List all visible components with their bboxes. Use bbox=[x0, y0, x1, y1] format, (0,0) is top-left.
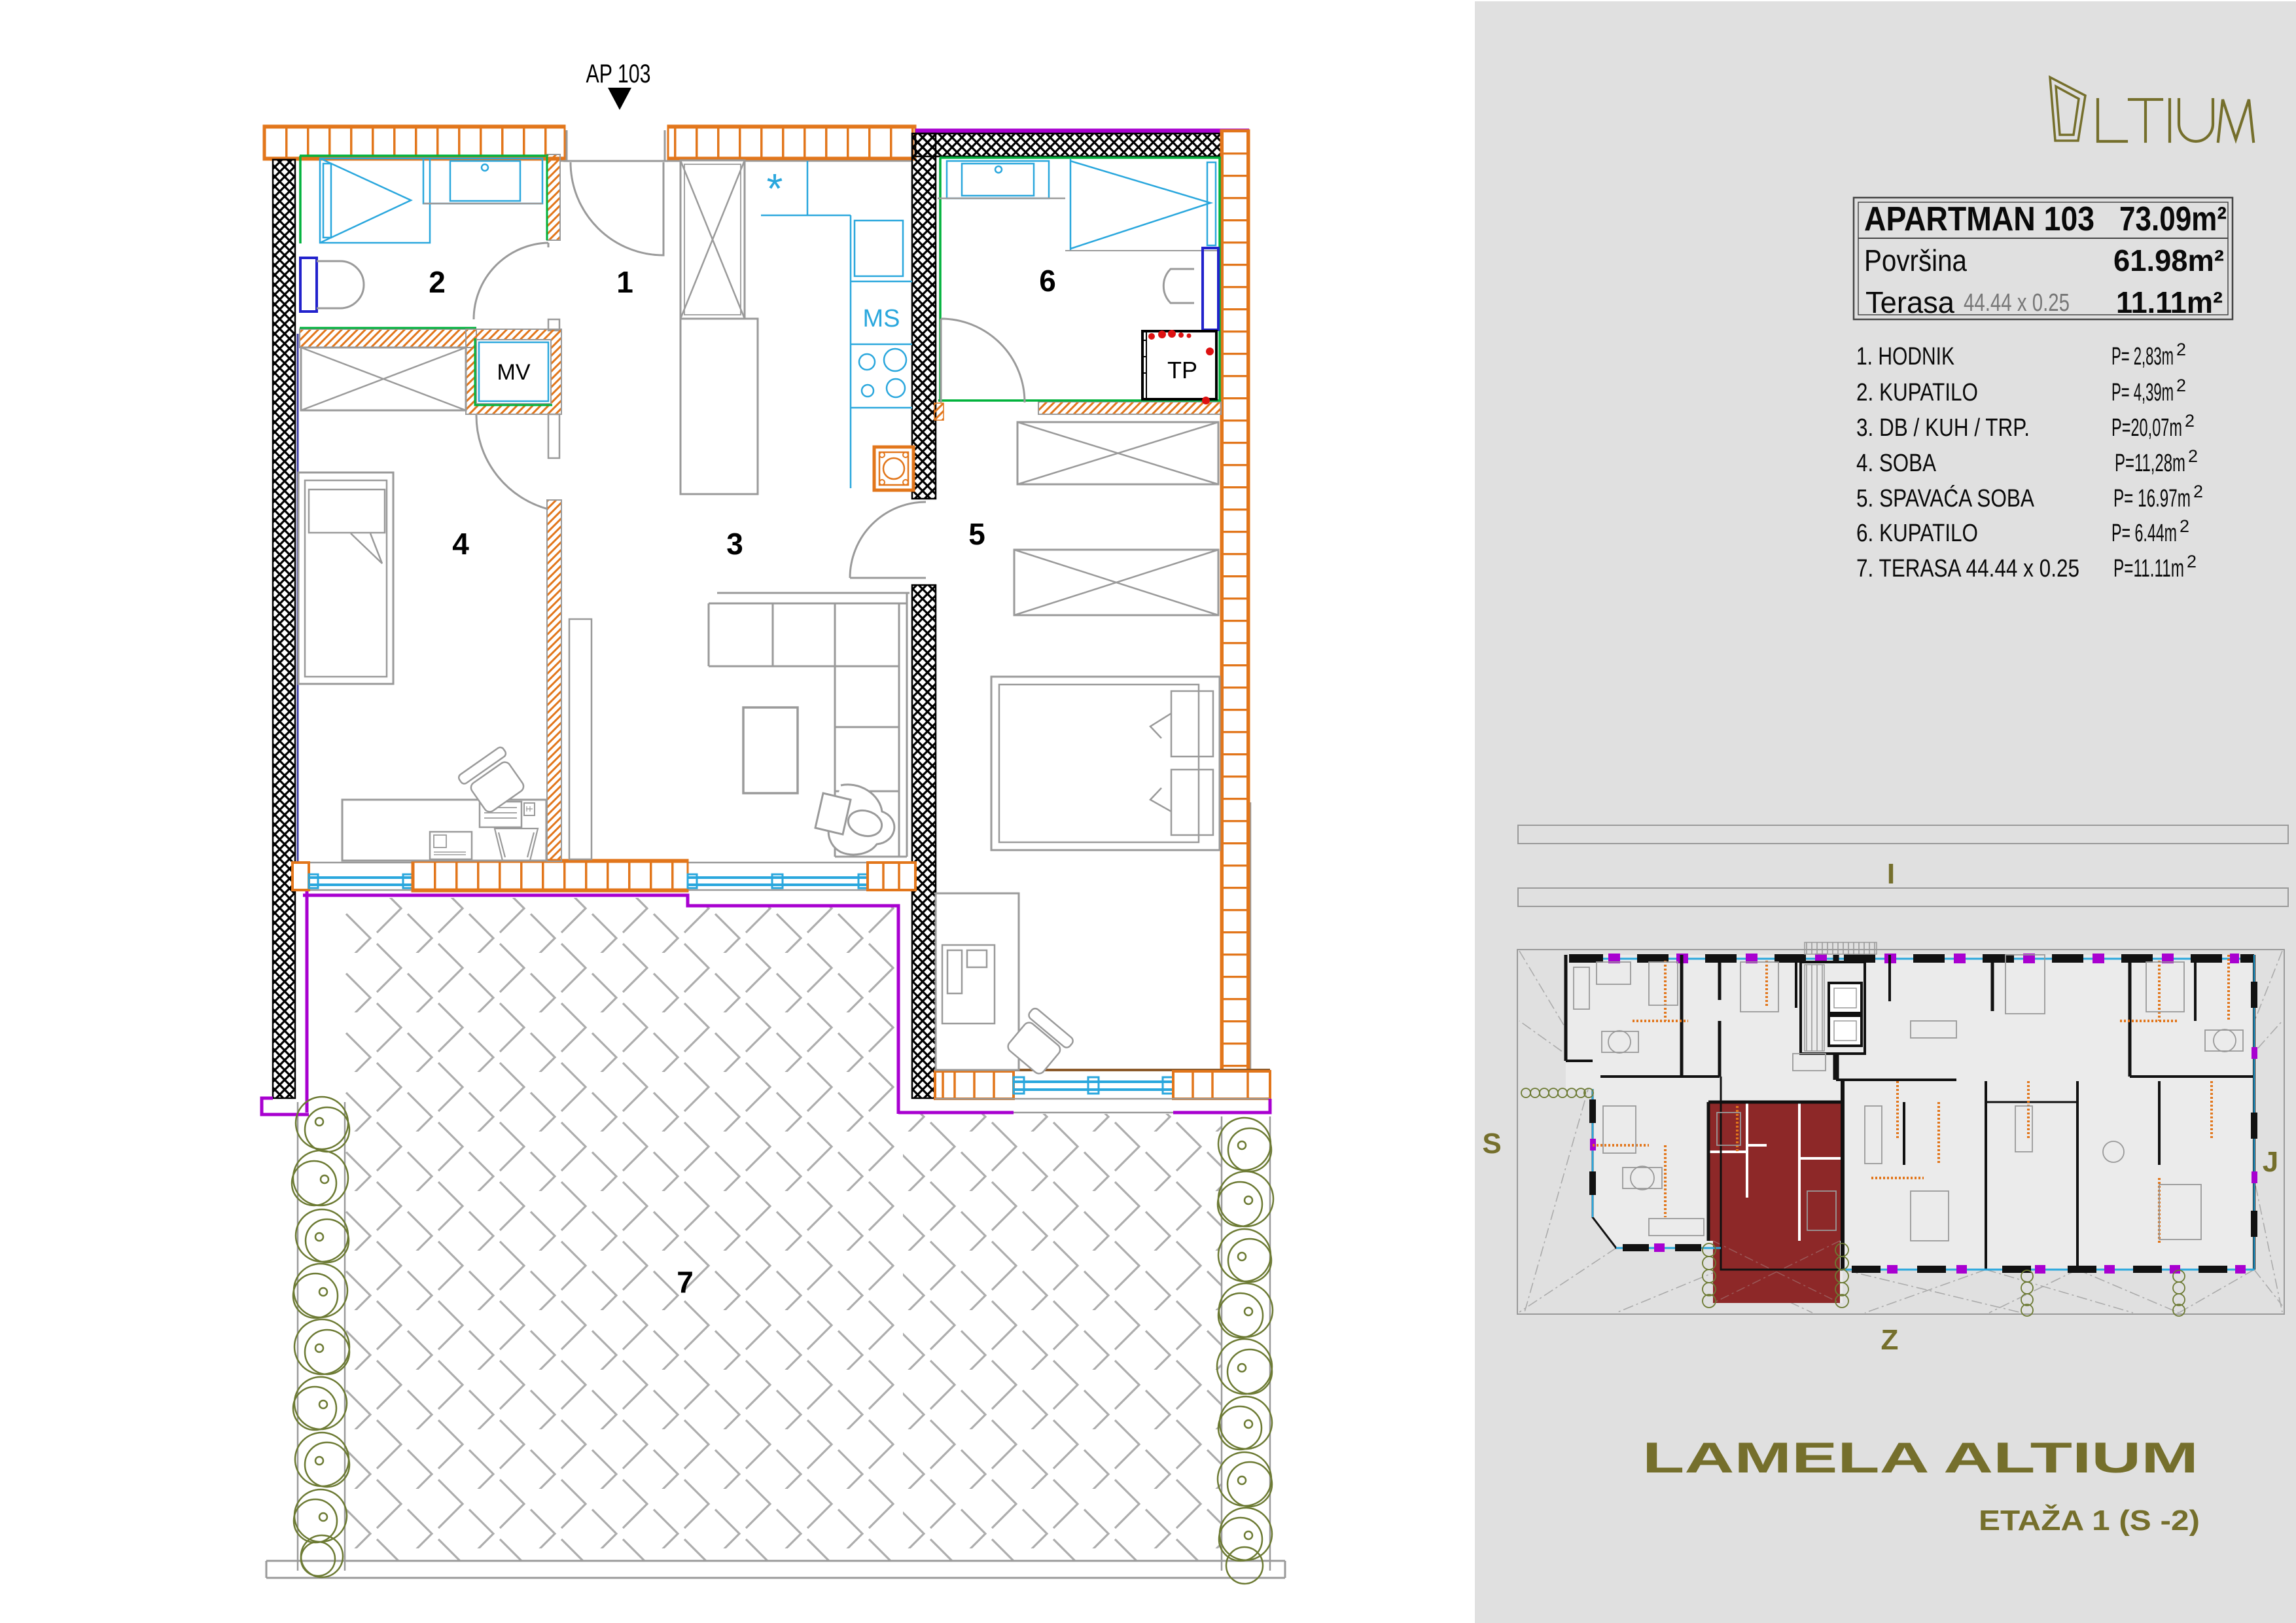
svg-text:P= 6.44m: P= 6.44m bbox=[2111, 520, 2177, 547]
svg-text:P= 16.97m: P= 16.97m bbox=[2113, 485, 2191, 512]
svg-text:P= 2,83m: P= 2,83m bbox=[2111, 343, 2174, 370]
svg-text:TP: TP bbox=[1167, 357, 1197, 383]
svg-text:4. SOBA: 4. SOBA bbox=[1856, 450, 1937, 477]
svg-text:2: 2 bbox=[2187, 552, 2197, 571]
svg-text:2: 2 bbox=[2176, 340, 2186, 359]
svg-text:2. KUPATILO: 2. KUPATILO bbox=[1856, 379, 1978, 406]
svg-text:73.09m²: 73.09m² bbox=[2119, 200, 2227, 238]
svg-text:ETAŽA 1 (S -2): ETAŽA 1 (S -2) bbox=[1979, 1504, 2200, 1537]
svg-text:Površina: Površina bbox=[1864, 243, 1967, 277]
svg-text:P=11.11m: P=11.11m bbox=[2113, 555, 2184, 582]
svg-text:1. HODNIK: 1. HODNIK bbox=[1856, 343, 1954, 370]
svg-text:11.11m²: 11.11m² bbox=[2116, 285, 2223, 319]
svg-text:2: 2 bbox=[2193, 482, 2203, 501]
svg-text:AP 103: AP 103 bbox=[586, 60, 651, 88]
svg-text:LAMELA ALTIUM: LAMELA ALTIUM bbox=[1642, 1433, 2199, 1482]
svg-text:6. KUPATILO: 6. KUPATILO bbox=[1856, 520, 1978, 547]
svg-text:2: 2 bbox=[2188, 446, 2198, 466]
svg-text:Z: Z bbox=[1881, 1324, 1899, 1356]
svg-text:P=11,28m: P=11,28m bbox=[2115, 450, 2185, 477]
svg-text:P=20,07m: P=20,07m bbox=[2111, 414, 2182, 442]
svg-text:Terasa: Terasa bbox=[1865, 285, 1954, 319]
svg-text:2: 2 bbox=[429, 265, 446, 299]
svg-text:7. TERASA 44.44 x 0.25: 7. TERASA 44.44 x 0.25 bbox=[1856, 555, 2079, 582]
svg-text:2: 2 bbox=[2176, 376, 2186, 395]
svg-text:44.44 x 0.25: 44.44 x 0.25 bbox=[1964, 289, 2070, 317]
svg-text:2: 2 bbox=[2185, 411, 2195, 431]
svg-text:61.98m²: 61.98m² bbox=[2113, 243, 2224, 277]
svg-text:J: J bbox=[2263, 1146, 2278, 1178]
svg-text:APARTMAN 103: APARTMAN 103 bbox=[1864, 200, 2094, 238]
svg-text:S: S bbox=[1482, 1128, 1501, 1160]
svg-text:6: 6 bbox=[1039, 264, 1056, 298]
svg-text:3. DB / KUH / TRP.: 3. DB / KUH / TRP. bbox=[1856, 414, 2030, 442]
svg-text:MS: MS bbox=[863, 305, 900, 332]
svg-text:P= 4,39m: P= 4,39m bbox=[2111, 379, 2174, 406]
svg-text:I: I bbox=[1887, 858, 1895, 890]
svg-text:1: 1 bbox=[616, 265, 633, 299]
svg-text:4: 4 bbox=[452, 527, 469, 561]
svg-text:5. SPAVAĆA SOBA: 5. SPAVAĆA SOBA bbox=[1856, 484, 2035, 512]
svg-text:*: * bbox=[767, 165, 783, 212]
svg-text:2: 2 bbox=[2180, 516, 2189, 536]
svg-text:5: 5 bbox=[968, 517, 985, 551]
svg-text:3: 3 bbox=[726, 527, 743, 561]
svg-text:7: 7 bbox=[677, 1265, 694, 1299]
svg-text:MV: MV bbox=[497, 360, 531, 385]
